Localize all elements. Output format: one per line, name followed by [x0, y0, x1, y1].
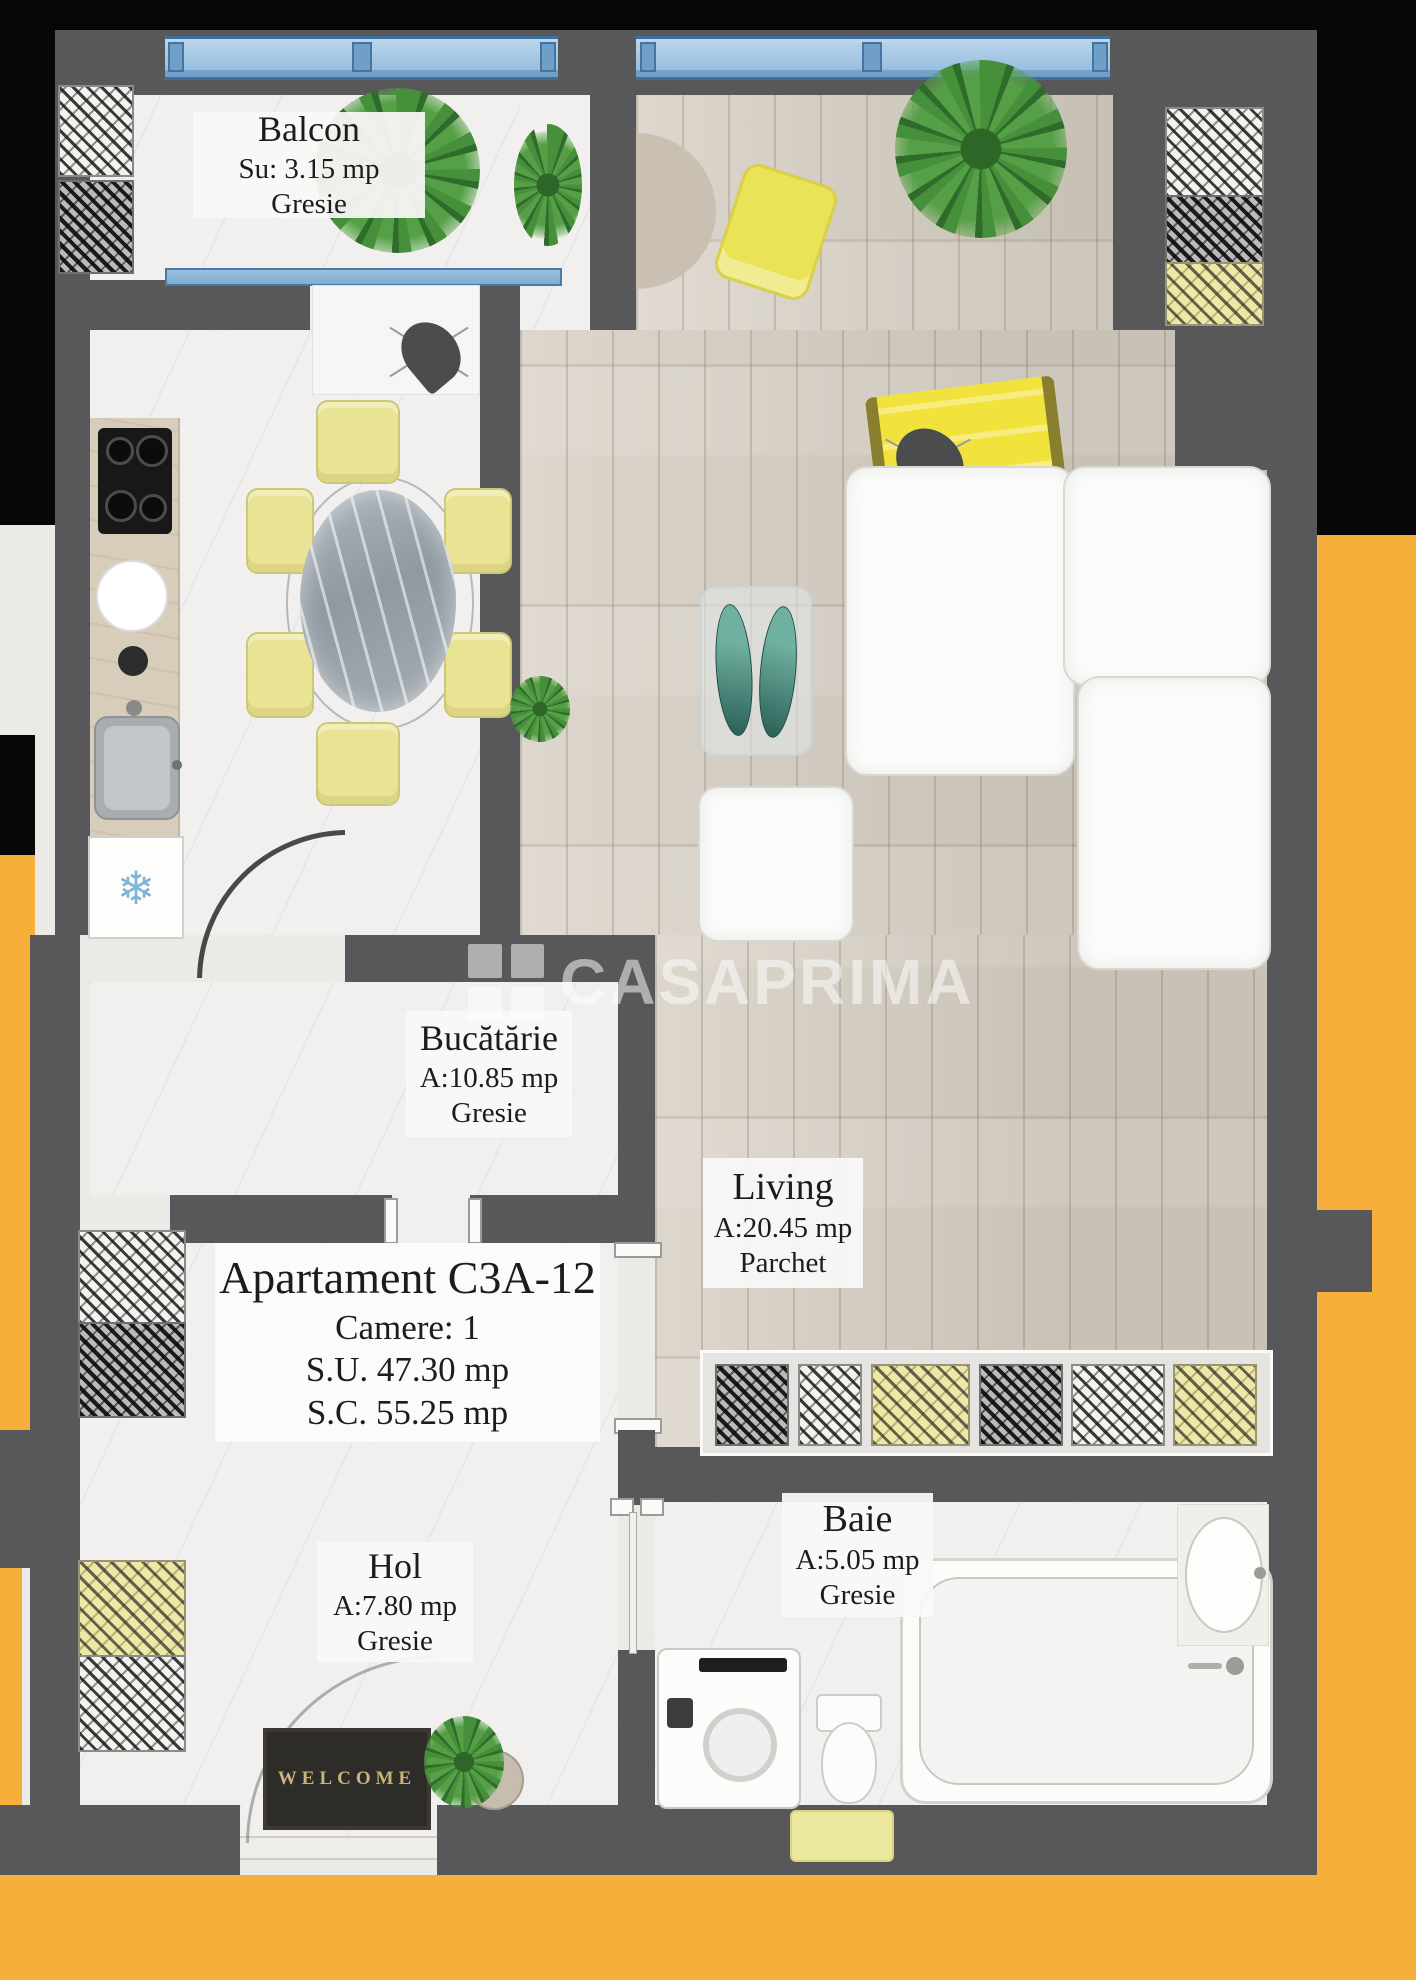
washing-machine [657, 1648, 801, 1809]
dining-chair [444, 488, 512, 574]
living-plant [895, 60, 1067, 238]
watermark: CASAPRIMA [468, 944, 975, 1020]
dining-chair [246, 632, 314, 718]
toilet [816, 1694, 880, 1804]
wall-right [1267, 95, 1317, 1875]
dining-table [300, 490, 456, 712]
room-area: A:7.80 mp [317, 1589, 473, 1624]
decor-shelf [700, 1350, 1273, 1456]
sofa-ottoman [698, 786, 854, 942]
room-area: A:10.85 mp [406, 1061, 572, 1096]
room-floor: Gresie [193, 187, 425, 222]
background-bottom-band [0, 1875, 1416, 1980]
apartment-rooms: Camere: 1 [215, 1307, 600, 1350]
room-floor: Gresie [406, 1096, 572, 1131]
room-floor: Gresie [317, 1624, 473, 1659]
welcome-mat-text: WELCOME [278, 1768, 416, 1790]
balcony-radiator [58, 85, 134, 177]
wall-right-column-block [1175, 330, 1267, 470]
room-floor: Gresie [782, 1578, 933, 1613]
bath-mat [790, 1810, 894, 1862]
bathroom-sink [1177, 1504, 1269, 1646]
hall-wardrobe [78, 1322, 186, 1418]
background-left-small [0, 735, 35, 855]
wall-hall-right-upper [618, 982, 655, 1250]
freezer-icon: ❄ [117, 861, 156, 915]
room-name: Living [703, 1164, 863, 1210]
sofa-cushion [1063, 466, 1271, 686]
kitchen-knob [118, 646, 148, 676]
door-jamb [384, 1198, 398, 1244]
dining-chair [444, 632, 512, 718]
background-top-strip [0, 0, 1416, 30]
sofa-cushion [845, 466, 1075, 776]
living-niche-plant [514, 124, 582, 246]
window-bracket [640, 42, 656, 72]
room-floor: Parchet [703, 1246, 863, 1281]
window-bracket [352, 42, 372, 72]
living-wardrobe [1165, 195, 1264, 266]
room-area: A:5.05 mp [782, 1543, 933, 1578]
freezer: ❄ [88, 836, 184, 939]
watermark-text: CASAPRIMA [560, 945, 975, 1019]
window-bracket [862, 42, 882, 72]
room-name: Balcon [193, 108, 425, 152]
bathroom-door-leaf [629, 1512, 637, 1654]
kitchen-hall-door-opening [392, 1195, 470, 1243]
wall-balcony-divider [590, 30, 636, 330]
apartment-built-area: S.C. 55.25 mp [215, 1392, 600, 1435]
welcome-mat: WELCOME [263, 1728, 431, 1830]
watermark-logo-icon [468, 944, 544, 1020]
living-wardrobe [1165, 262, 1264, 326]
window-bracket [168, 42, 184, 72]
living-wardrobe [1165, 107, 1264, 199]
window-bracket [540, 42, 556, 72]
kitchen-door-arc [197, 830, 345, 978]
bathroom-door-jamb [640, 1498, 664, 1516]
room-name: Bucătărie [406, 1017, 572, 1061]
living-small-plant [510, 676, 570, 742]
window-bracket [1092, 42, 1108, 72]
kitchen-sink [94, 716, 180, 820]
room-name: Hol [317, 1545, 473, 1589]
wall-hall-right-lower [618, 1650, 655, 1805]
hall-label: Hol A:7.80 mp Gresie [317, 1542, 473, 1662]
wall-hall-right-stub [618, 1430, 655, 1505]
floor-plan: ❄ [0, 0, 1416, 1980]
entry-plant [424, 1716, 504, 1808]
room-name: Baie [782, 1496, 933, 1542]
coffee-table [700, 586, 812, 756]
hall-wardrobe [78, 1560, 186, 1659]
balcony-radiator [58, 180, 134, 274]
balcony-label: Balcon Su: 3.15 mp Gresie [193, 112, 425, 218]
dining-chair [316, 400, 400, 484]
wall-bottom-left [0, 1805, 240, 1875]
kitchen-small-item [126, 700, 142, 716]
dining-chair [316, 722, 400, 806]
apartment-info-label: Apartament C3A-12 Camere: 1 S.U. 47.30 m… [215, 1243, 600, 1442]
room-area: Su: 3.15 mp [193, 152, 425, 187]
apartment-title: Apartament C3A-12 [215, 1250, 600, 1306]
door-jamb [614, 1242, 662, 1258]
kitchen-label: Bucătărie A:10.85 mp Gresie [406, 1011, 572, 1137]
kitchen-plate [96, 560, 168, 632]
wall-kitchen-living [480, 282, 520, 935]
wall-under-balcony [55, 280, 310, 330]
dining-chair [246, 488, 314, 574]
room-area: A:20.45 mp [703, 1211, 863, 1246]
sofa-cushion [1077, 676, 1271, 970]
background-top-right [1317, 0, 1416, 535]
hall-wardrobe [78, 1655, 186, 1752]
hall-wardrobe [78, 1230, 186, 1326]
balcony-sill-window [165, 268, 562, 286]
bathroom-label: Baie A:5.05 mp Gresie [782, 1493, 933, 1617]
door-jamb [468, 1198, 482, 1244]
wall-right-notch [1317, 1210, 1372, 1292]
pendant-lamp [400, 312, 462, 396]
cooktop [98, 428, 172, 534]
living-label: Living A:20.45 mp Parchet [703, 1158, 863, 1288]
wall-left-lower [30, 935, 80, 1805]
apartment-usable-area: S.U. 47.30 mp [215, 1349, 600, 1392]
